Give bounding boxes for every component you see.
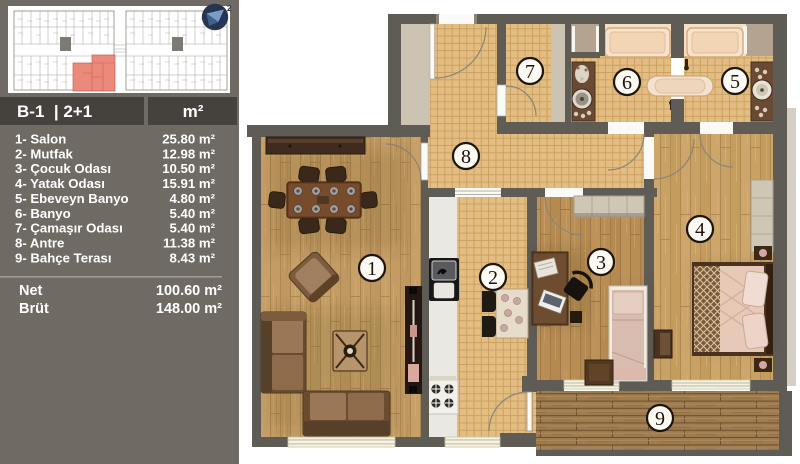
svg-text:7: 7 xyxy=(525,61,535,83)
svg-text:7- Çamaşır Odası: 7- Çamaşır Odası xyxy=(15,221,123,236)
svg-text:4: 4 xyxy=(695,219,705,241)
svg-text:5.40 m²: 5.40 m² xyxy=(170,206,216,221)
svg-text:8: 8 xyxy=(461,146,471,168)
svg-text:148.00 m²: 148.00 m² xyxy=(156,301,222,317)
svg-text:2: 2 xyxy=(488,267,498,289)
svg-text:Brüt: Brüt xyxy=(19,301,49,317)
svg-text:9: 9 xyxy=(655,408,665,430)
svg-text:B-1 | 2+1: B-1 | 2+1 xyxy=(17,102,92,121)
svg-text:3: 3 xyxy=(596,252,606,274)
svg-text:8.43 m²: 8.43 m² xyxy=(170,250,216,265)
svg-text:5.40 m²: 5.40 m² xyxy=(170,221,216,236)
svg-text:2- Mutfak: 2- Mutfak xyxy=(15,146,74,161)
svg-text:10.50 m²: 10.50 m² xyxy=(162,161,215,176)
svg-text:1- Salon: 1- Salon xyxy=(15,132,66,147)
svg-text:11.38 m²: 11.38 m² xyxy=(163,236,216,251)
svg-text:6: 6 xyxy=(622,72,632,94)
svg-text:5- Ebeveyn Banyo: 5- Ebeveyn Banyo xyxy=(15,191,129,206)
svg-text:2: 2 xyxy=(227,4,232,13)
svg-text:5: 5 xyxy=(730,71,740,93)
svg-text:Net: Net xyxy=(19,283,43,299)
svg-text:12.98 m²: 12.98 m² xyxy=(162,146,215,161)
svg-text:3- Çocuk Odası: 3- Çocuk Odası xyxy=(15,161,111,176)
svg-text:15.91 m²: 15.91 m² xyxy=(162,176,215,191)
svg-text:6- Banyo: 6- Banyo xyxy=(15,206,71,221)
svg-text:8- Antre: 8- Antre xyxy=(15,236,64,251)
svg-text:25.80 m²: 25.80 m² xyxy=(162,132,215,147)
svg-text:m²: m² xyxy=(183,102,204,121)
svg-text:100.60 m²: 100.60 m² xyxy=(156,283,222,299)
svg-text:4.80 m²: 4.80 m² xyxy=(170,191,216,206)
svg-text:9- Bahçe Terası: 9- Bahçe Terası xyxy=(15,250,112,265)
svg-text:4- Yatak Odası: 4- Yatak Odası xyxy=(15,176,105,191)
svg-text:1: 1 xyxy=(367,258,377,280)
